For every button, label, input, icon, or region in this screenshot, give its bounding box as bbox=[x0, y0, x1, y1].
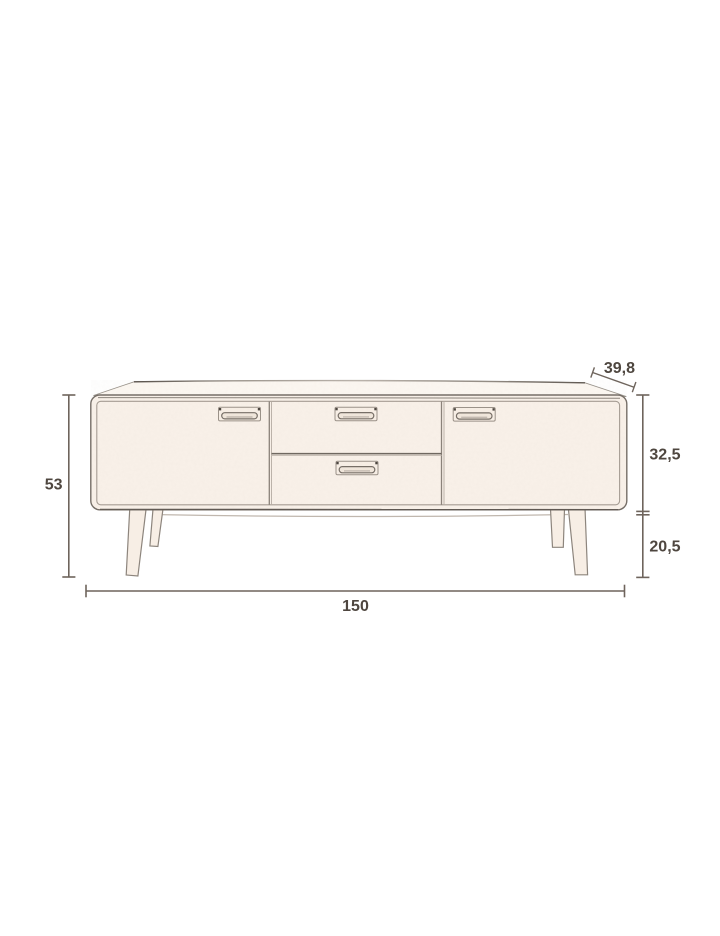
svg-text:150: 150 bbox=[342, 598, 369, 615]
svg-text:20,5: 20,5 bbox=[649, 539, 680, 556]
svg-text:39,8: 39,8 bbox=[604, 360, 635, 377]
svg-text:53: 53 bbox=[45, 477, 63, 494]
svg-text:32,5: 32,5 bbox=[649, 446, 680, 463]
